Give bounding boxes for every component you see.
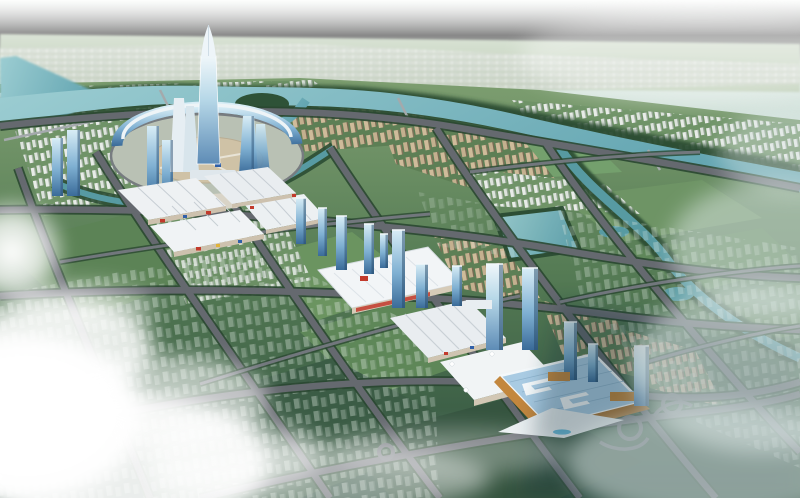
rendering-canvas: [0, 0, 800, 498]
hall-blue-sign: [470, 346, 474, 349]
cloud-wisp: [14, 282, 154, 330]
hall-red-sign: [444, 352, 448, 355]
hall-yellow-sign: [216, 244, 220, 247]
landmark-spire-body: [197, 56, 220, 164]
dome: [490, 352, 494, 356]
aerial-city-rendering: [0, 0, 800, 498]
dome: [464, 388, 468, 392]
cloud-wisp: [332, 428, 572, 476]
white-podium: [466, 300, 492, 309]
dome: [450, 362, 454, 366]
